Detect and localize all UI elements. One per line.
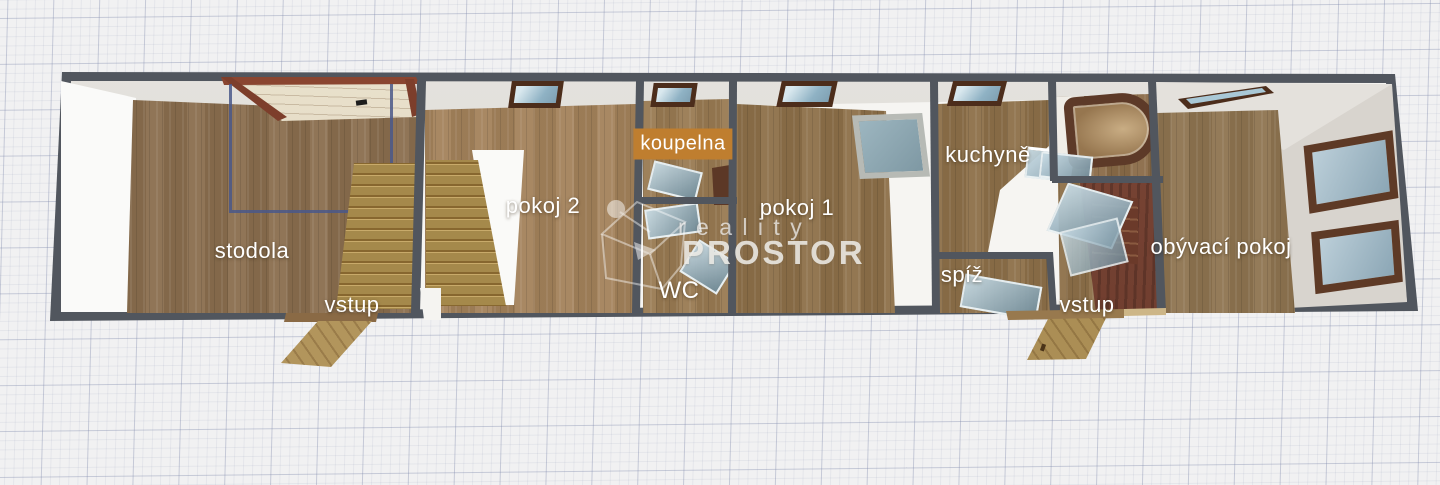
room-label-spiz: spíž <box>941 262 983 288</box>
room-label-pokoj2: pokoj 2 <box>506 193 580 219</box>
obyvaci-window-lower <box>1311 220 1403 294</box>
room-label-vstup-right: vstup <box>1059 292 1114 318</box>
pokoj2-skylight <box>508 81 564 108</box>
room-label-stodola: stodola <box>215 238 289 264</box>
bath-door-glass <box>1039 151 1093 182</box>
room-label-obyvaci: obývací pokoj <box>1150 234 1291 260</box>
loft-frame-posts <box>229 84 393 213</box>
room-label-koupelna: koupelna <box>633 129 732 160</box>
kuchyne-skylight <box>947 81 1007 106</box>
watermark-brand-bottom: PROSTOR <box>682 234 866 272</box>
room-label-vstup-left: vstup <box>324 292 379 318</box>
pokoj1-open-window <box>852 113 930 179</box>
pokoj1-skylight <box>776 81 838 107</box>
floorplan-canvas: stodola vstup pokoj 2 koupelna WC pokoj … <box>0 0 1440 485</box>
watermark-cube-logo <box>590 192 690 292</box>
room-label-kuchyne: kuchyně <box>945 142 1030 168</box>
koupelna-skylight <box>650 83 697 107</box>
